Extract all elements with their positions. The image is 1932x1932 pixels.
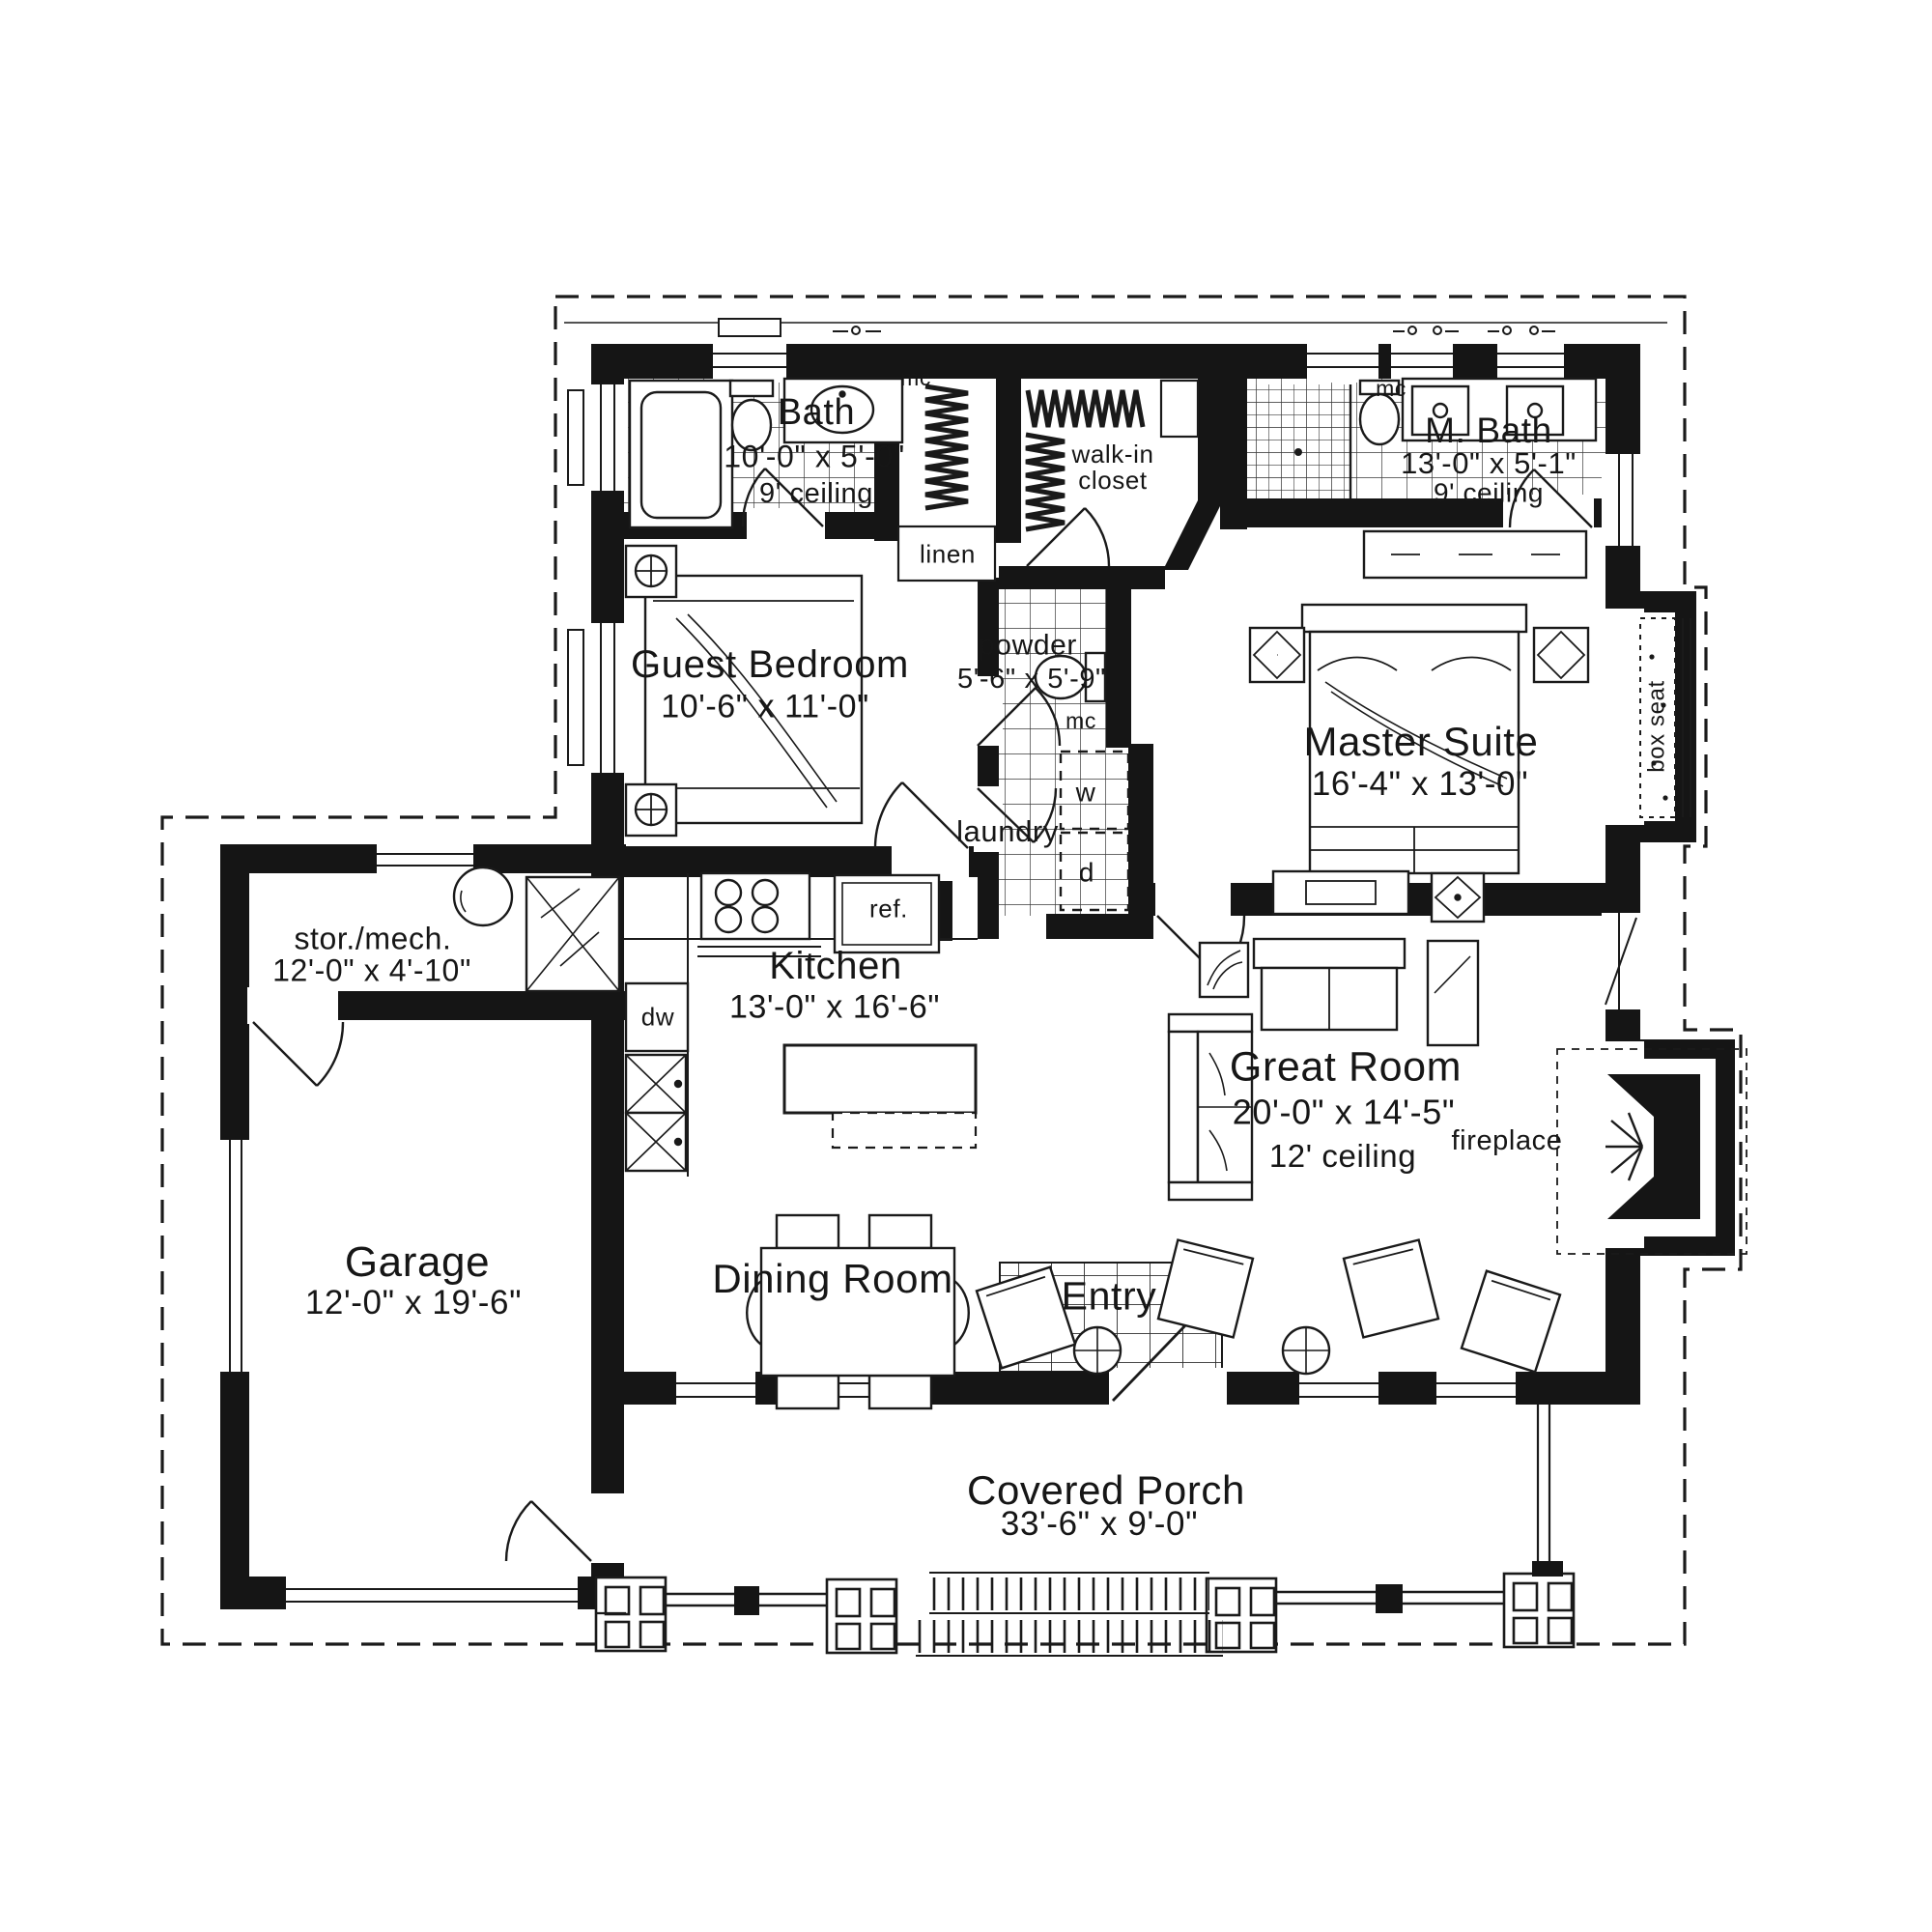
label-refrigerator: ref. [869,895,908,922]
label-dryer: d [1079,858,1094,886]
room-label-powder-name: powder [979,630,1077,660]
label-washer: w [1076,778,1096,806]
floor-plan-sheet: Bath 10'-0" x 5'-0" 9' ceiling mc linen … [0,0,1932,1932]
room-label-covered-porch-dims: 33'-6" x 9'-0" [1001,1507,1198,1542]
storage-mech-fixtures [454,867,619,991]
room-label-great-room-ceiling: 12' ceiling [1269,1140,1416,1173]
room-label-kitchen-dims: 13'-0" x 16'-6" [729,990,940,1024]
room-label-garage-dims: 12'-0" x 19'-6" [305,1286,522,1321]
room-label-master-suite-dims: 16'-4" x 13'-0" [1312,767,1528,802]
room-label-garage-name: Garage [345,1240,490,1285]
label-fireplace: fireplace [1451,1126,1562,1155]
room-label-master-bath-dims: 13'-0" x 5'-1" [1401,448,1577,479]
room-label-storage-mech-dims: 12'-0" x 4'-10" [272,954,471,986]
label-dishwasher: dw [641,1004,674,1030]
room-label-bath-name: Bath [778,394,856,433]
label-box-seat: box seat [1646,680,1670,773]
room-label-storage-mech-name: stor./mech. [294,923,451,954]
room-label-master-bath-ceiling: 9' ceiling [1434,478,1544,506]
label-medicine-cabinet-master-bath: mc [1376,378,1406,401]
room-label-powder-dims: 5'-6" x 5'-9" [957,665,1106,694]
room-label-kitchen-name: Kitchen [769,947,902,987]
room-label-master-suite-name: Master Suite [1304,721,1539,763]
room-label-dining-room: Dining Room [712,1258,952,1300]
label-medicine-cabinet-bath: mc [900,367,931,390]
room-label-laundry: laundry [956,816,1059,847]
room-label-great-room-name: Great Room [1230,1046,1462,1090]
room-label-master-bath-name: M. Bath [1425,412,1552,449]
room-label-guest-bedroom-name: Guest Bedroom [631,645,909,686]
room-label-entry: Entry [1062,1276,1157,1318]
room-label-walk-in-closet: walk-in closet [1049,441,1177,494]
room-label-guest-bedroom-dims: 10'-6" x 11'-0" [661,690,869,724]
master-suite-furniture [1250,531,1588,873]
room-label-bath-ceiling: 9' ceiling [759,479,873,508]
room-label-bath-dims: 10'-0" x 5'-0" [724,440,904,472]
label-medicine-cabinet-powder: mc [1065,710,1096,733]
label-linen: linen [920,541,976,567]
room-label-great-room-dims: 20'-0" x 14'-5" [1233,1094,1455,1129]
